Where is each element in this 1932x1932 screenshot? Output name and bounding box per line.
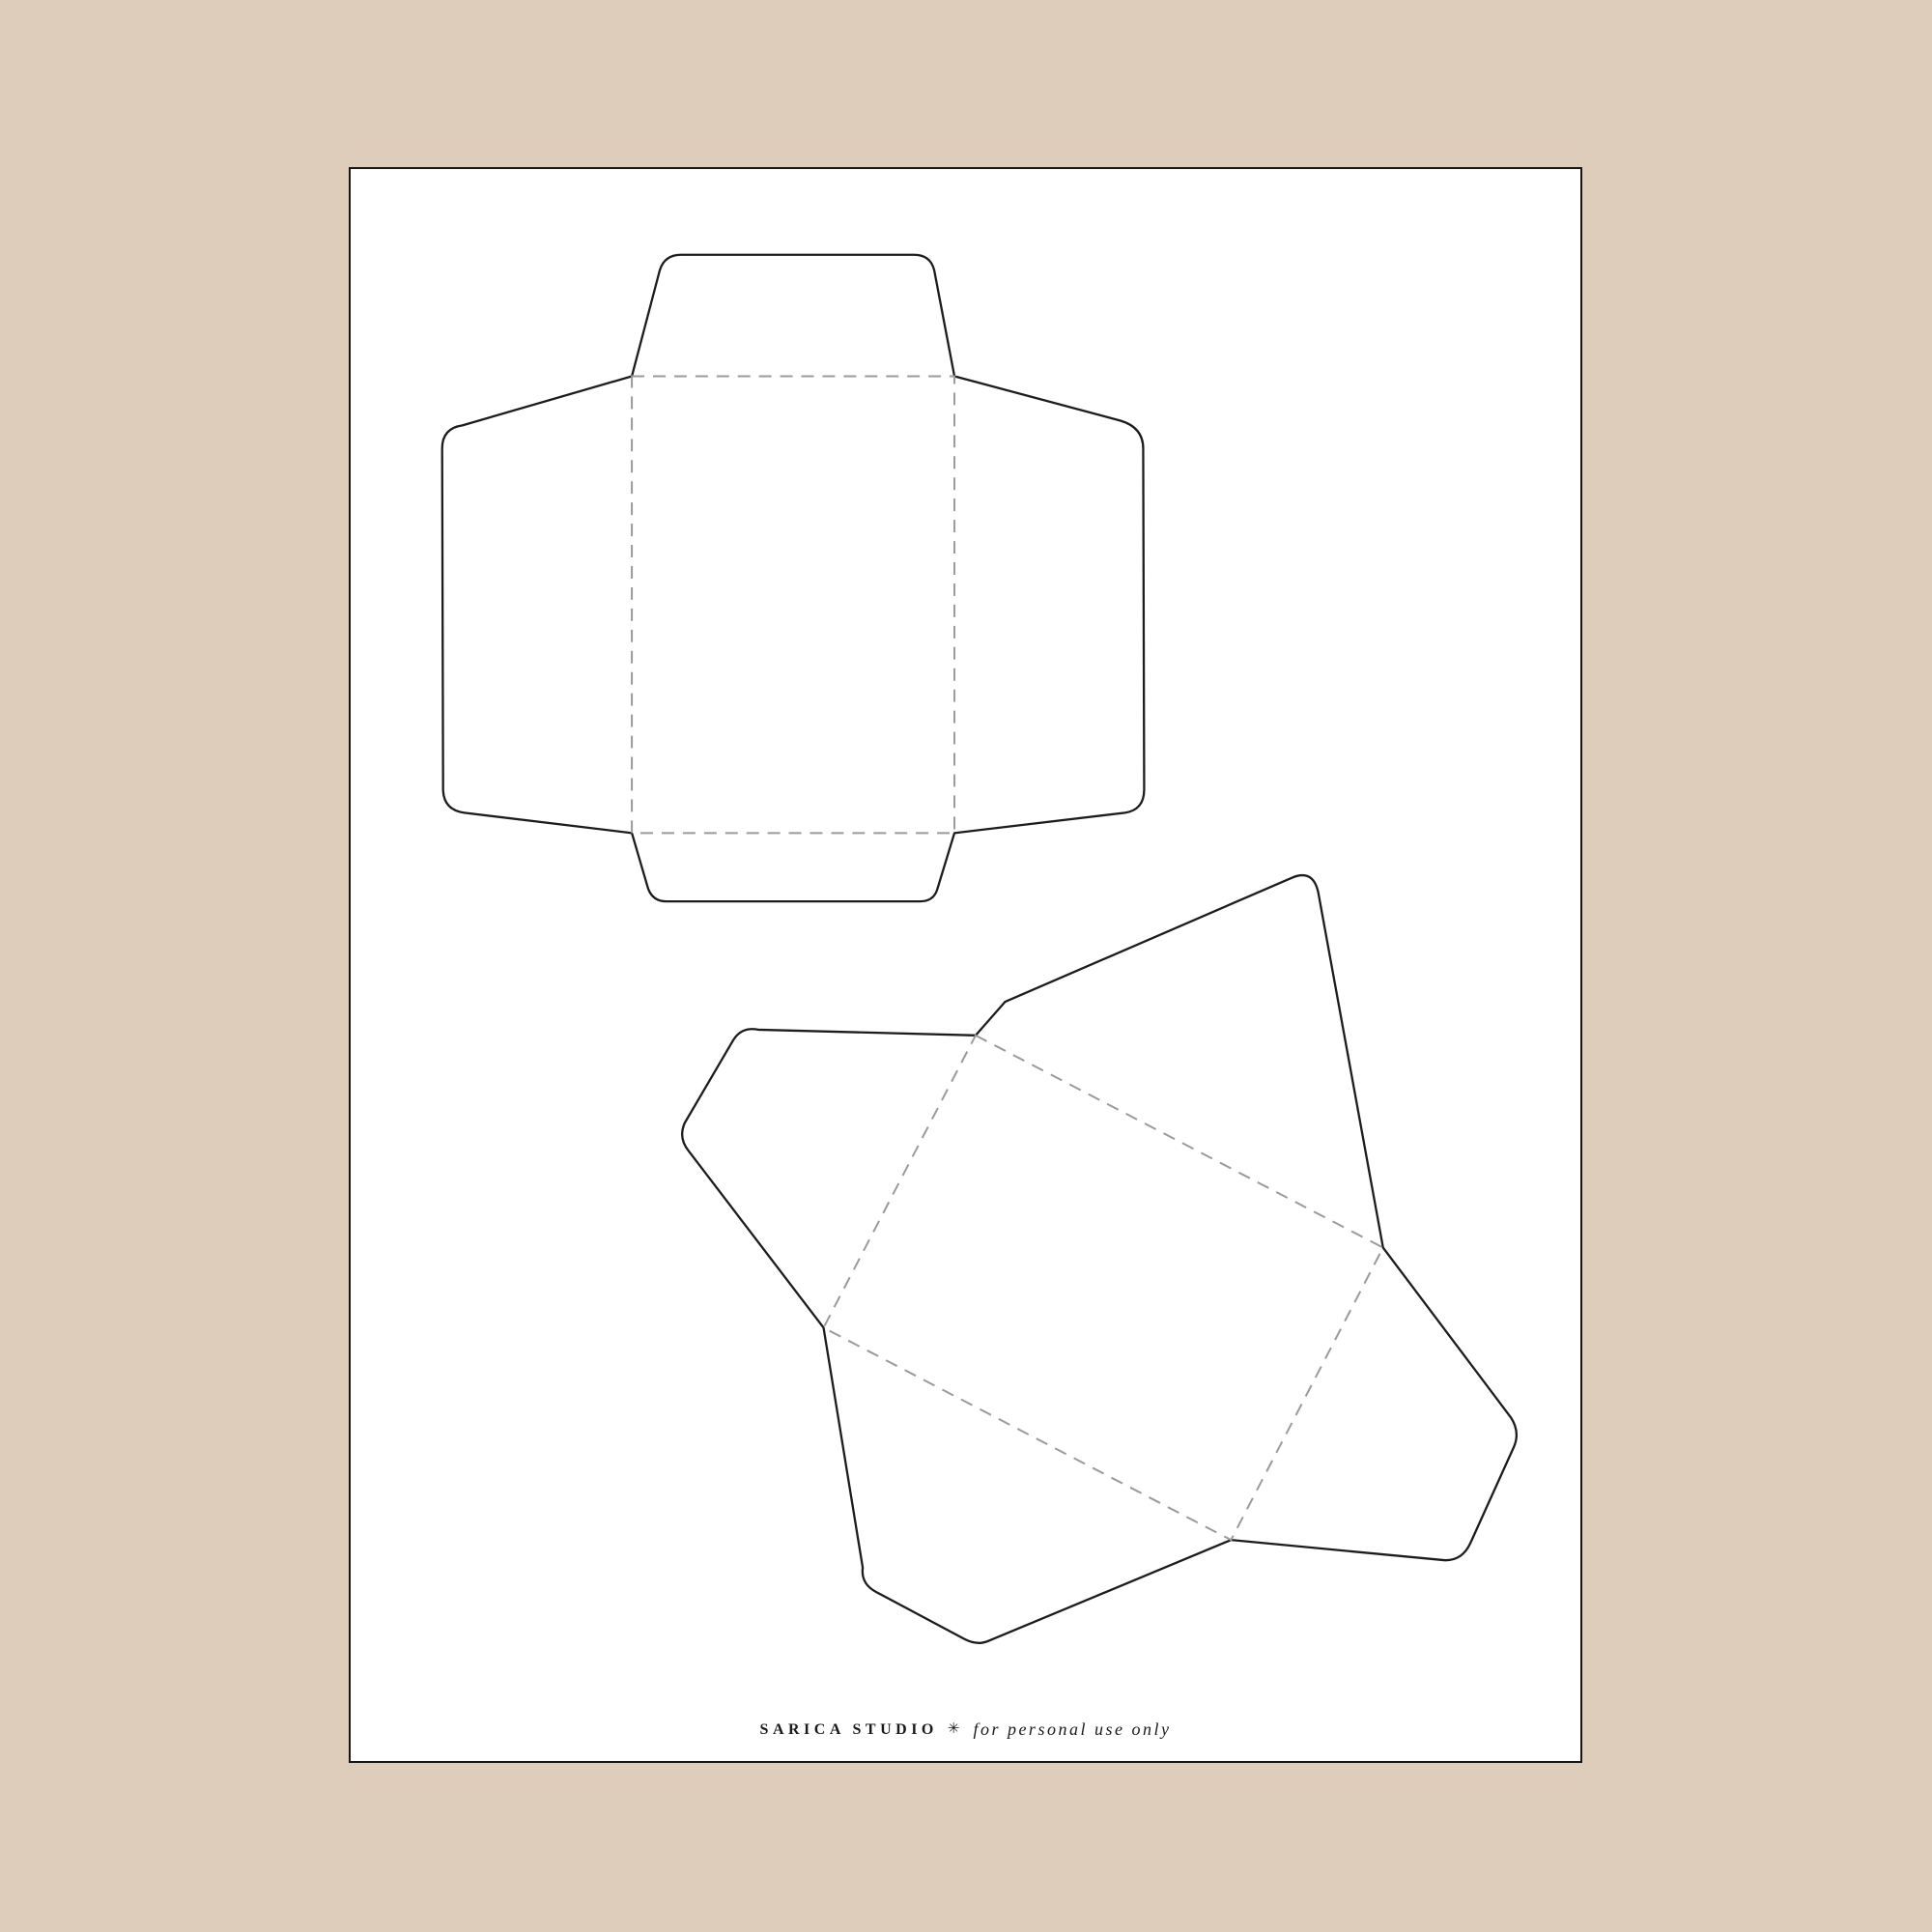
envelope-cut-outline <box>533 673 1580 1761</box>
envelope-cut-outline <box>442 255 1145 901</box>
studio-name-label: SARICA STUDIO <box>760 1721 938 1739</box>
envelope-template-straight <box>442 255 1145 901</box>
eight-point-star-icon: ✳ <box>948 1722 960 1737</box>
envelope-fold-lines <box>632 376 954 833</box>
template-sheet-page: SARICA STUDIO ✳ for personal use only <box>349 167 1582 1763</box>
envelope-template-pointed <box>533 673 1580 1761</box>
footer-credit-line: SARICA STUDIO ✳ for personal use only <box>351 1719 1580 1740</box>
envelope-templates-graphic <box>351 169 1580 1761</box>
beige-backdrop: SARICA STUDIO ✳ for personal use only <box>0 0 1932 1932</box>
envelope-fold-lines <box>824 1036 1383 1540</box>
personal-use-notice: for personal use only <box>973 1719 1171 1740</box>
